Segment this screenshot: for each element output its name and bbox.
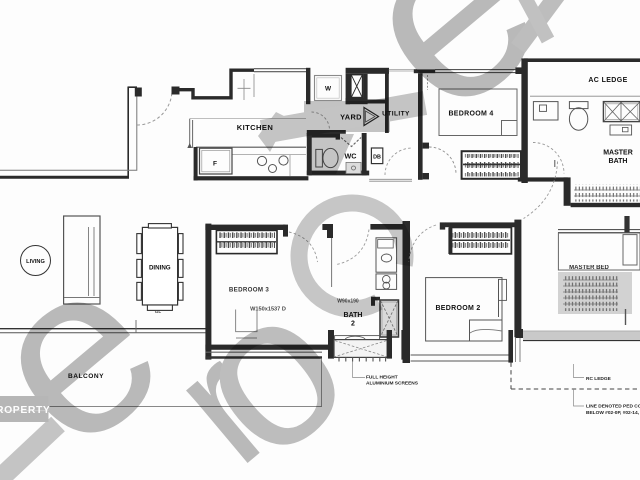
svg-text:2: 2 xyxy=(351,321,355,328)
svg-text:LINE DENOTED PED COVE: LINE DENOTED PED COVE xyxy=(586,404,640,410)
svg-text:MASTER: MASTER xyxy=(603,150,633,157)
svg-text:ALUMINIUM SCREENS: ALUMINIUM SCREENS xyxy=(366,381,419,387)
svg-text:W: W xyxy=(325,86,332,93)
svg-text:BATH: BATH xyxy=(609,158,628,165)
svg-text:F: F xyxy=(213,161,217,168)
svg-text:BELOW #02-0P, #02-14, #0: BELOW #02-0P, #02-14, #0 xyxy=(586,410,640,416)
svg-text:AC LEDGE: AC LEDGE xyxy=(588,77,627,84)
svg-text:MASTER BED: MASTER BED xyxy=(569,265,609,271)
svg-text:FULL HEIGHT: FULL HEIGHT xyxy=(366,375,398,381)
svg-text:DB: DB xyxy=(373,155,381,161)
svg-text:BEDROOM 2: BEDROOM 2 xyxy=(435,305,480,312)
svg-text:RC LEDGE: RC LEDGE xyxy=(586,376,612,382)
svg-text:ROPERTY: ROPERTY xyxy=(0,405,50,416)
svg-text:DINING: DINING xyxy=(149,265,171,272)
svg-text:WC: WC xyxy=(345,152,357,161)
